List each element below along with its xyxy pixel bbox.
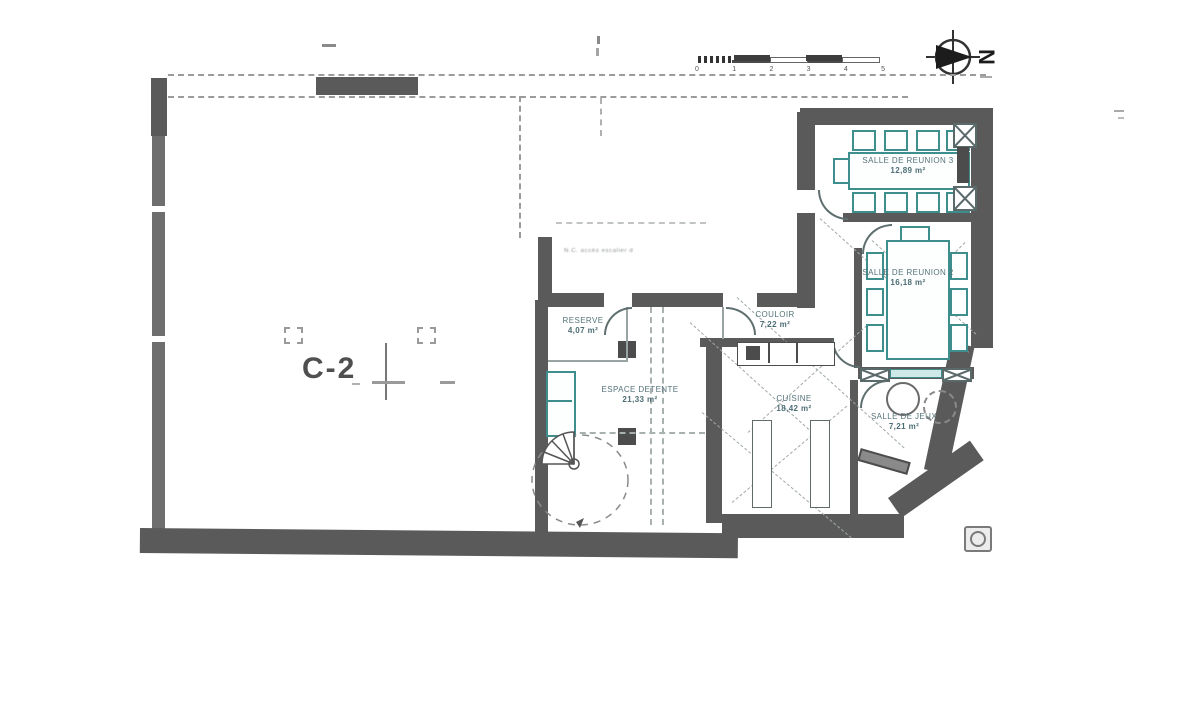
window-mullion-icon: [860, 368, 890, 382]
north-arrow-icon: N: [922, 26, 1002, 88]
kitchen-table: [752, 420, 772, 508]
scale-seg-solid: [806, 55, 842, 61]
chair: [884, 192, 908, 213]
counter-divider: [796, 343, 798, 363]
room-name: SALLE DE JEUX: [866, 412, 942, 422]
chair: [866, 324, 884, 352]
room-label-reunion2: SALLE DE REUNION 2 16,18 m²: [862, 268, 954, 288]
room-label-couloir: COULOIR 7,22 m²: [742, 310, 808, 330]
room-name: ESPACE DETENTE: [588, 385, 692, 395]
wall-gap: [152, 336, 165, 342]
removed-partition-dashed: [650, 307, 652, 525]
annotation-text: N.C. accès escalier d: [564, 248, 633, 253]
chair: [852, 192, 876, 213]
room-name: SALLE DE REUNION 3: [850, 156, 966, 166]
scale-tick: 2: [769, 66, 773, 73]
room-label-cuisine: CUISINE 18,42 m²: [752, 394, 836, 414]
bench: [857, 448, 911, 475]
window-mullion-icon: [942, 368, 972, 382]
room-area: 21,33 m²: [588, 395, 692, 405]
wall-segment: [843, 213, 976, 222]
scan-dash: [352, 383, 360, 385]
scan-tick: [1114, 110, 1124, 112]
chair: [866, 288, 884, 316]
room-area: 16,18 m²: [862, 278, 954, 288]
wall-segment: [632, 293, 723, 307]
faint-line: [556, 222, 706, 224]
wall-segment: [706, 343, 722, 523]
room-area: 18,42 m²: [752, 404, 836, 414]
chair: [852, 130, 876, 151]
wall-segment: [538, 237, 552, 307]
scale-tick: 4: [844, 66, 848, 73]
scan-tick: [1118, 117, 1124, 119]
column-marker: [284, 327, 303, 344]
scale-seg-open: [842, 57, 880, 63]
room-name: COULOIR: [742, 310, 808, 320]
kitchen-sink: [746, 346, 760, 360]
scan-dash: [440, 381, 455, 384]
room-label-reunion3: SALLE DE REUNION 3 12,89 m²: [850, 156, 966, 176]
scan-tick: [596, 48, 599, 56]
spiral-stair-icon: [522, 430, 630, 528]
wall-segment: [316, 77, 418, 95]
scale-tick-labels: 0 1 2 3 4 5: [695, 66, 885, 73]
chair: [884, 130, 908, 151]
conference-table: [886, 240, 950, 360]
window-mullion-icon: [953, 123, 977, 148]
door-arc: [832, 340, 860, 368]
leader-line: [385, 343, 387, 400]
partition-line: [548, 360, 628, 362]
window-sill: [890, 369, 942, 378]
room-name: RESERVE: [552, 316, 614, 326]
floor-plan-scan: 0 1 2 3 4 5 N: [0, 0, 1200, 704]
chair: [833, 158, 850, 184]
wall-segment: [757, 293, 803, 307]
scale-tick: 5: [881, 66, 885, 73]
boundary-dashed-line: [519, 96, 521, 238]
scan-tick: [322, 44, 336, 47]
door-arc: [860, 380, 888, 408]
scale-tick: 1: [732, 66, 736, 73]
wall-gap: [152, 206, 165, 212]
boundary-dashed-line: [168, 74, 986, 76]
removed-partition-dashed: [662, 307, 664, 525]
window-mullion-icon: [953, 186, 977, 211]
chair: [950, 288, 968, 316]
scan-tick: [597, 36, 600, 44]
chair: [916, 192, 940, 213]
room-label-salle-de-jeux: SALLE DE JEUX 7,21 m²: [866, 412, 942, 432]
room-label-espace-detente: ESPACE DETENTE 21,33 m²: [588, 385, 692, 405]
room-area: 7,22 m²: [742, 320, 808, 330]
column-marker: [417, 327, 436, 344]
scale-seg-solid: [734, 55, 770, 61]
wall-segment: [722, 514, 904, 538]
chair: [916, 130, 940, 151]
stamp-icon: [964, 526, 992, 552]
unit-label: C-2: [302, 352, 356, 386]
round-table: [886, 382, 920, 416]
kitchen-table: [810, 420, 830, 508]
boundary-dashed-line: [168, 96, 908, 98]
counter-divider: [768, 343, 770, 363]
wall-segment: [151, 78, 167, 136]
scan-dash: [372, 381, 405, 384]
room-area: 7,21 m²: [866, 422, 942, 432]
room-area: 12,89 m²: [850, 166, 966, 176]
smudge-mark: [980, 76, 992, 78]
room-area: 4,07 m²: [552, 326, 614, 336]
door-arc: [818, 190, 848, 220]
stamp-inner-circle: [970, 531, 986, 547]
scale-seg-open: [770, 57, 808, 63]
room-label-reserve: RESERVE 4,07 m²: [552, 316, 614, 336]
boundary-dashed-line: [600, 98, 602, 136]
room-name: CUISINE: [752, 394, 836, 404]
wall-segment: [797, 112, 815, 190]
chair: [950, 324, 968, 352]
wall-segment: [140, 528, 738, 558]
chair: [900, 226, 930, 242]
wall-line: [722, 307, 724, 339]
scale-tick: 0: [695, 66, 699, 73]
room-name: SALLE DE REUNION 2: [862, 268, 954, 278]
sofa: [546, 371, 576, 437]
north-letter: N: [973, 49, 999, 65]
scale-seg-hatch: [698, 56, 732, 63]
sofa-cushion-line: [548, 400, 572, 402]
scale-tick: 3: [807, 66, 811, 73]
